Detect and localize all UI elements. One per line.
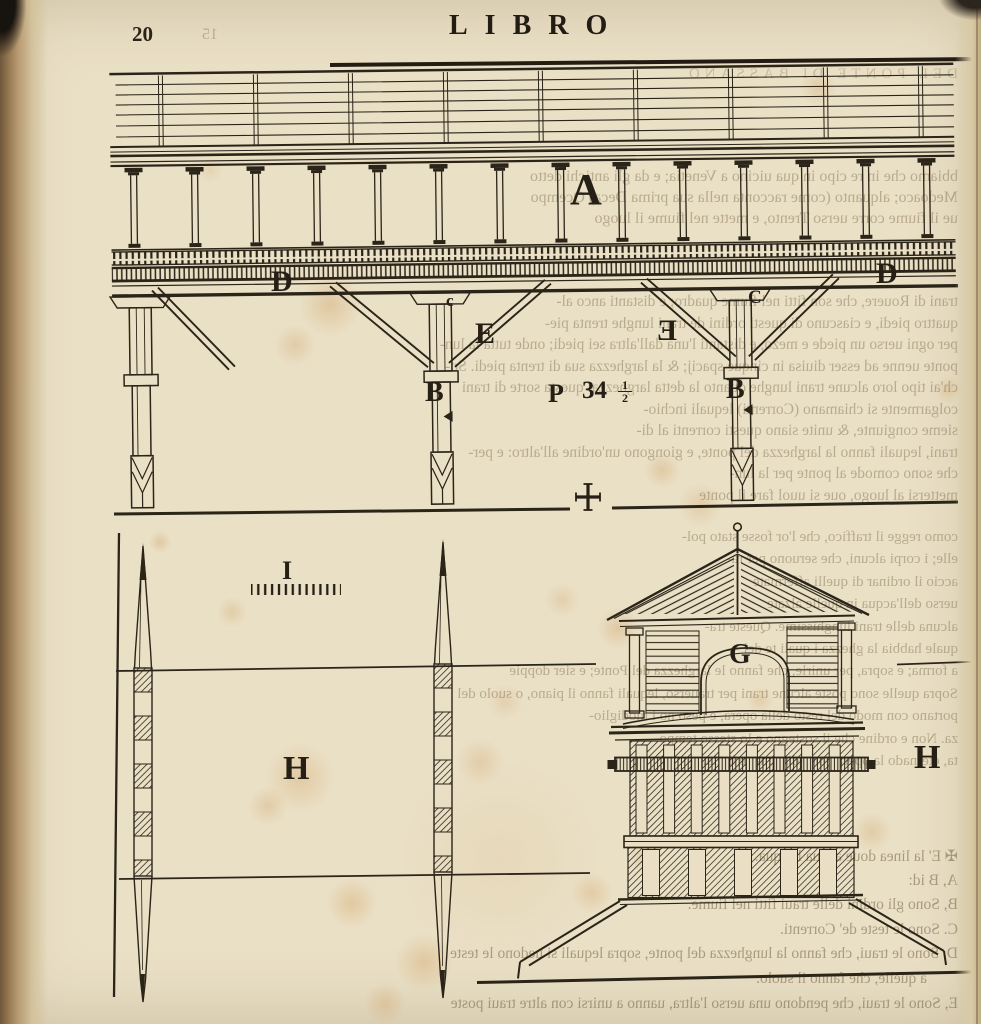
page-edge-line (976, 0, 978, 1024)
plate-label-a: A (570, 168, 602, 212)
plate-label-h-left: H (283, 752, 309, 786)
plate-label-e-left: E (475, 319, 495, 349)
book-page-scan: 15 DEL PONTE DI BASSANO bbiamo che in re… (0, 0, 981, 1024)
plate-label-h-right: H (914, 741, 940, 775)
plate-label-b-center: B (425, 379, 444, 407)
scan-corner-shadow-tr (939, 0, 981, 20)
printed-ink-layer: 20 LIBRO A D D c C E E B B P 34 1 2 I H … (0, 0, 981, 1024)
fraction-denominator: 2 (618, 392, 632, 404)
plate-label-d-left: D (271, 267, 293, 297)
plate-label-c-small: c (446, 292, 454, 309)
plate-label-c-right: C (748, 288, 762, 307)
page-number: 20 (132, 22, 153, 47)
binding-gutter-edge (0, 0, 48, 1024)
scan-corner-shadow-tl (0, 0, 26, 56)
plate-label-g: G (729, 641, 751, 669)
plate-label-i: I (282, 558, 292, 584)
dimension-p: P (548, 381, 564, 407)
dimension-value: 34 (582, 378, 607, 403)
running-head: LIBRO (449, 10, 624, 42)
plate-label-e-mirrored: E (657, 316, 677, 346)
dimension-fraction: 1 2 (618, 380, 632, 404)
plate-label-d-right: D (876, 259, 898, 289)
plate-label-b-right: B (726, 376, 745, 404)
